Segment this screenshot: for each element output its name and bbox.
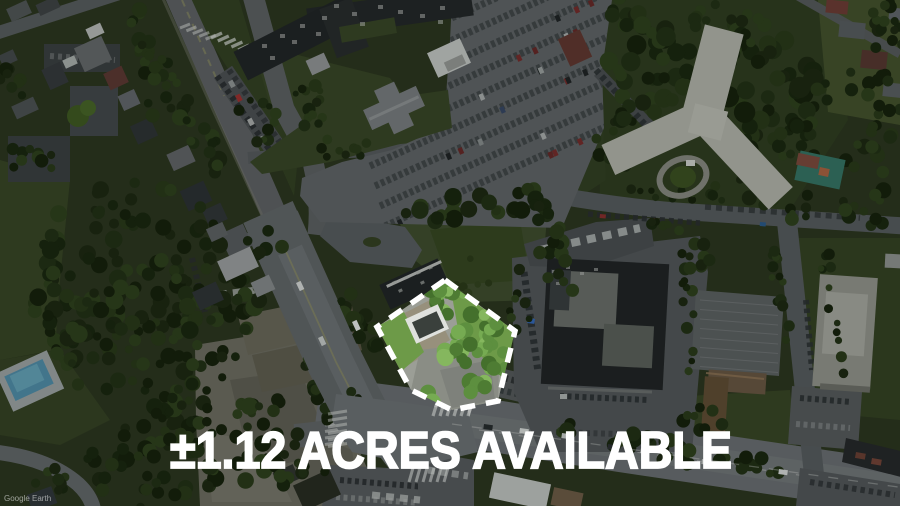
- svg-text:±1.12 ACRES AVAILABLE: ±1.12 ACRES AVAILABLE: [170, 422, 732, 480]
- svg-text:Google Earth: Google Earth: [4, 494, 51, 503]
